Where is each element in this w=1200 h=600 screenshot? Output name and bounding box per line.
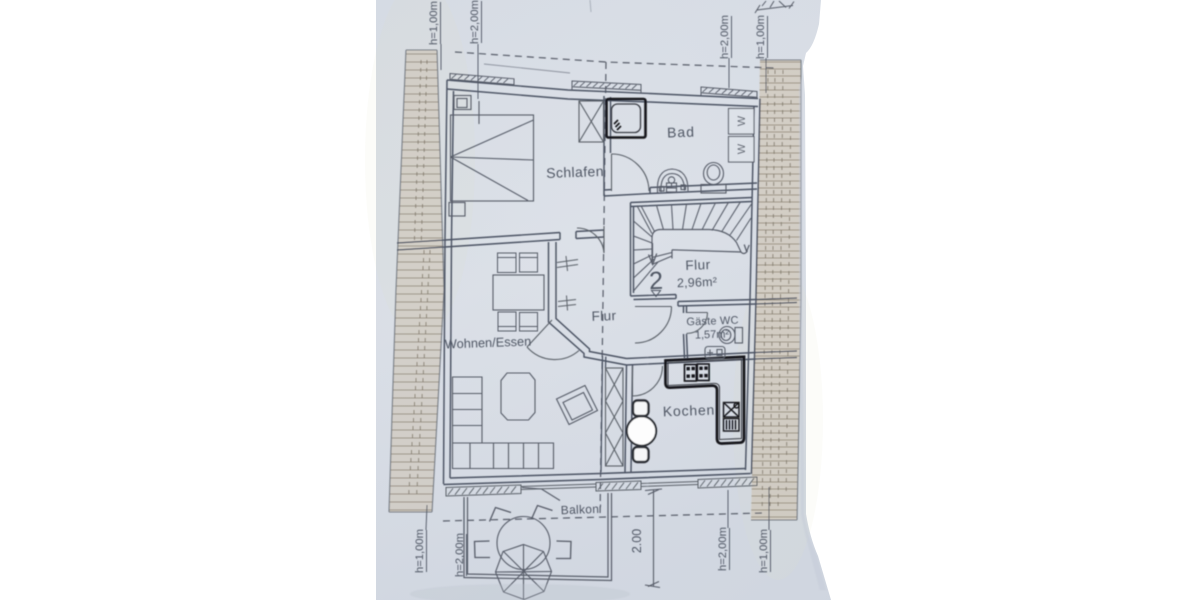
svg-text:Flur: Flur	[685, 257, 711, 273]
svg-text:Schlafen: Schlafen	[546, 163, 604, 181]
svg-text:W: W	[736, 143, 748, 154]
svg-text:Kochen: Kochen	[663, 402, 716, 420]
svg-text:h=2,00m: h=2,00m	[719, 15, 731, 59]
svg-text:Wohnen/Essen: Wohnen/Essen	[444, 333, 531, 351]
svg-text:2,96m²: 2,96m²	[677, 275, 718, 290]
svg-text:Bad: Bad	[667, 124, 695, 141]
svg-text:h=1,00m: h=1,00m	[755, 15, 767, 59]
svg-text:Balkon’: Balkon’	[561, 502, 603, 517]
svg-text:h=1,00m: h=1,00m	[428, 1, 440, 45]
svg-text:h=1,00m: h=1,00m	[414, 529, 426, 573]
svg-text:h=2,00m: h=2,00m	[469, 0, 481, 44]
svg-text:Flur: Flur	[591, 308, 616, 324]
svg-text:Gäste WC: Gäste WC	[686, 315, 739, 329]
svg-text:h=1,00m: h=1,00m	[758, 529, 770, 573]
svg-text:1,57m²: 1,57m²	[695, 328, 730, 341]
svg-text:2.00: 2.00	[630, 529, 644, 553]
svg-text:h=2,00m: h=2,00m	[454, 533, 466, 577]
svg-text:W: W	[736, 115, 748, 126]
svg-text:h=2,00m: h=2,00m	[717, 527, 729, 571]
